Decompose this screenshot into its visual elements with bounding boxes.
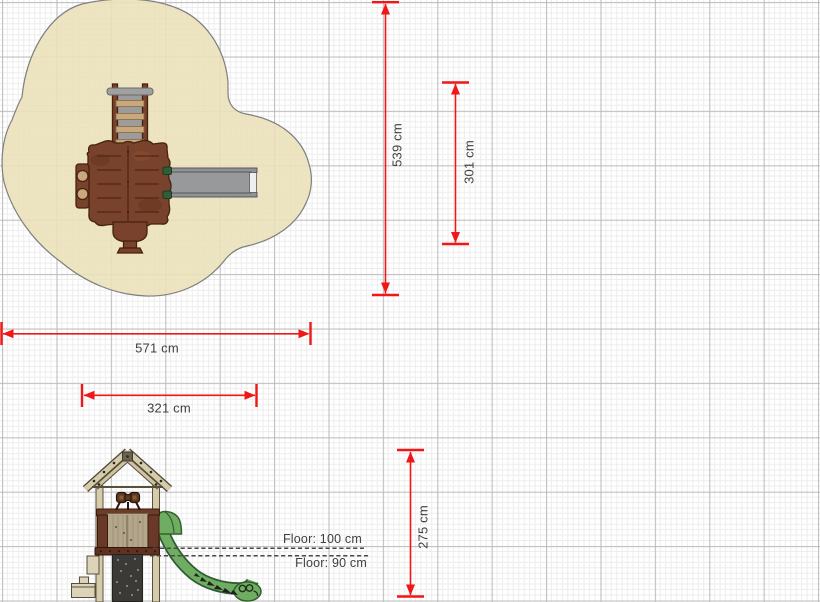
dimension-label-275: 275 cm	[417, 505, 430, 549]
platform-box	[95, 509, 160, 555]
steering-wheel-plan[interactable]	[76, 164, 89, 208]
climbing-wall[interactable]	[113, 555, 143, 602]
dimension-label-539: 539 cm	[391, 123, 404, 167]
dimension-label-571: 571 cm	[135, 342, 179, 355]
planner-drawing	[0, 0, 820, 602]
dimension-label-301: 301 cm	[463, 140, 476, 184]
dimension-label-321: 321 cm	[147, 402, 191, 415]
slide-plan[interactable]	[164, 168, 257, 197]
floor-label-90: Floor: 90 cm	[295, 556, 367, 569]
ladder-plan[interactable]	[107, 84, 153, 147]
floor-label-100: Floor: 100 cm	[283, 533, 362, 546]
planner-canvas[interactable]: 539 cm 301 cm 571 cm 321 cm 275 cm Floor…	[0, 0, 820, 602]
